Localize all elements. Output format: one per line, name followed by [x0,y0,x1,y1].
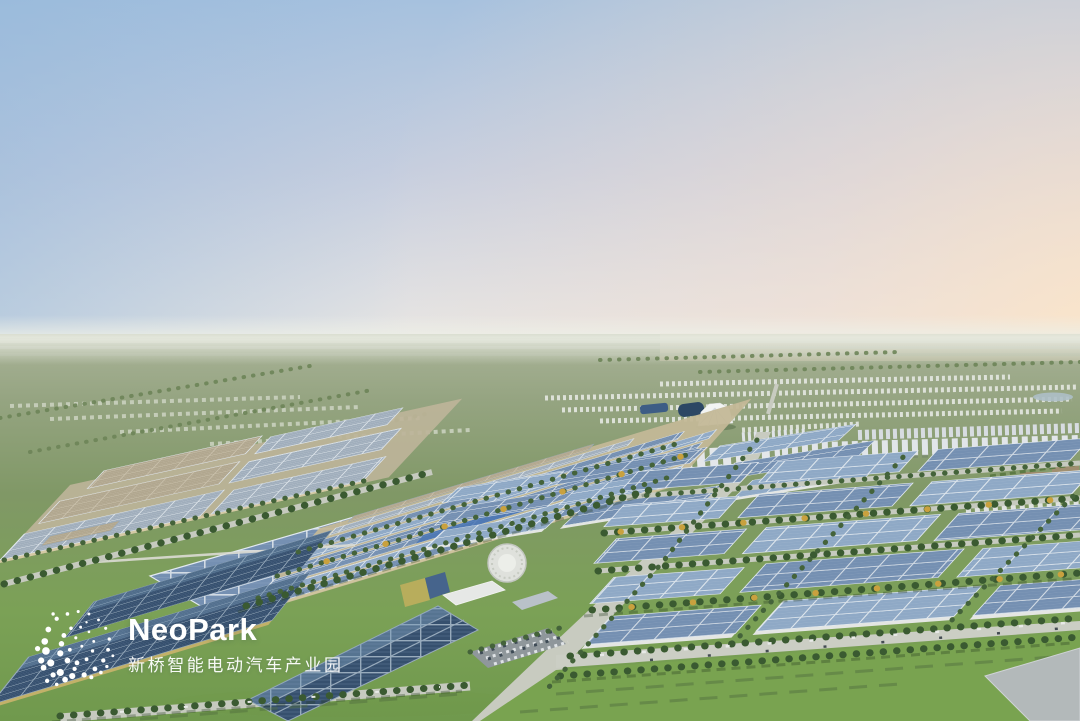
logo-wordmark: NeoPark [128,614,344,647]
distant-lake [1033,393,1073,402]
dotted-globe-icon [34,598,120,692]
logo-subtitle-cn: 新桥智能电动汽车产业园 [128,651,344,676]
sky [0,0,1080,346]
aerial-render: NeoPark 新桥智能电动汽车产业园 [0,0,1080,721]
neopark-logo: NeoPark 新桥智能电动汽车产业园 [34,598,344,692]
horizon-haze [0,315,1080,365]
